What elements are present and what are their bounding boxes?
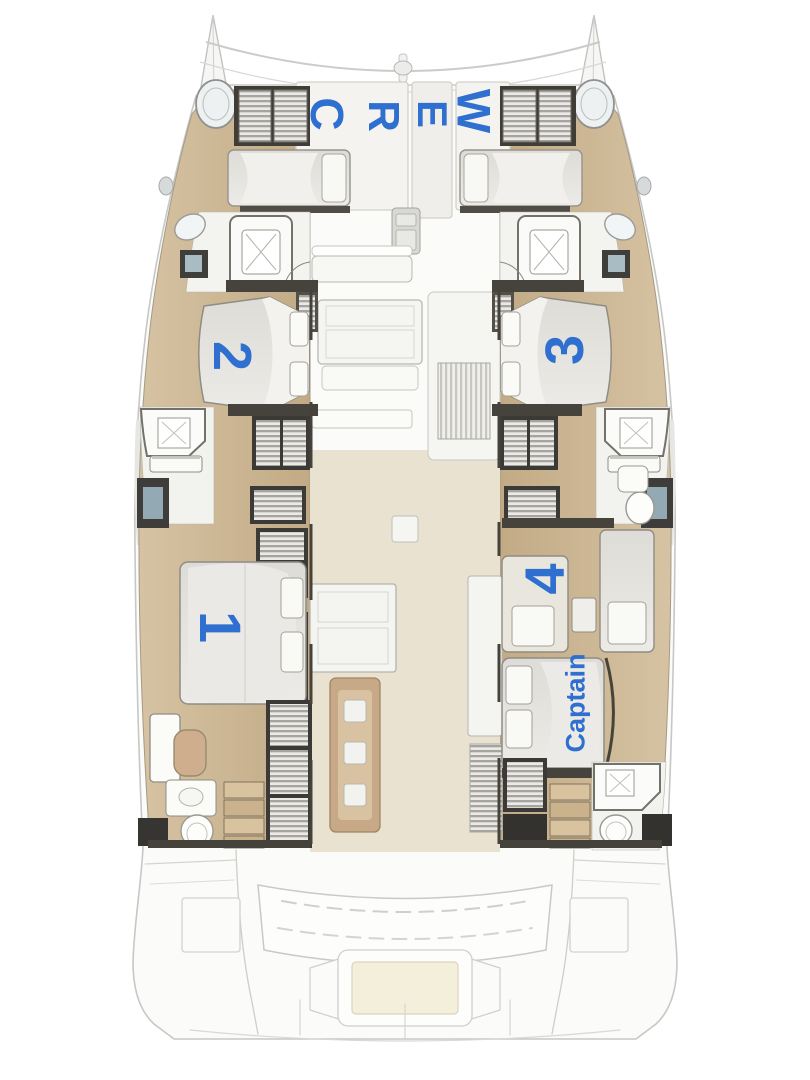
salon-sofa-seat (322, 366, 418, 390)
bed-pillow (506, 710, 532, 748)
cabin-4-label: 4 (517, 563, 573, 594)
bed-pillow (290, 362, 308, 396)
starboard-stairs (438, 363, 490, 439)
starboard-galley-stripes (470, 744, 502, 832)
crew-label-letter-w: W (451, 89, 498, 133)
salon-counter (312, 410, 412, 428)
forward-settee-back (312, 246, 412, 256)
salon-sofa (318, 300, 422, 364)
crew-label-letter-r: R (361, 100, 405, 132)
cabin-1-label: 1 (190, 611, 248, 643)
starboard-galley-counter (468, 576, 502, 736)
bed-pillow (512, 606, 554, 646)
bed-pillow (608, 602, 646, 644)
bed-pillow (281, 632, 303, 672)
salon-small-table (392, 516, 418, 542)
boat-plan-svg (0, 0, 810, 1080)
crew-label-letter-c: C (304, 97, 350, 130)
starboard-steps (550, 784, 590, 848)
forward-settee (312, 256, 412, 282)
port-steps (224, 782, 264, 848)
aft-port-locker (182, 898, 240, 952)
catamaran-floor-plan: C R E W 2 3 1 4 Captain (0, 0, 810, 1080)
toilet (626, 492, 654, 524)
bed-pillow (281, 578, 303, 618)
cabin-3-label: 3 (538, 335, 592, 365)
nightstand (572, 598, 596, 632)
stool (174, 730, 206, 776)
captain-cabin-label: Captain (563, 653, 590, 752)
bed-pillow (506, 666, 532, 704)
crew-bed-pillow (322, 154, 346, 202)
bowsprit-fitting (394, 61, 412, 75)
cabin-2-label: 2 (205, 341, 259, 371)
bow-hatch (196, 80, 236, 128)
bed-pillow (290, 312, 308, 346)
aft-starboard-locker (570, 898, 628, 952)
